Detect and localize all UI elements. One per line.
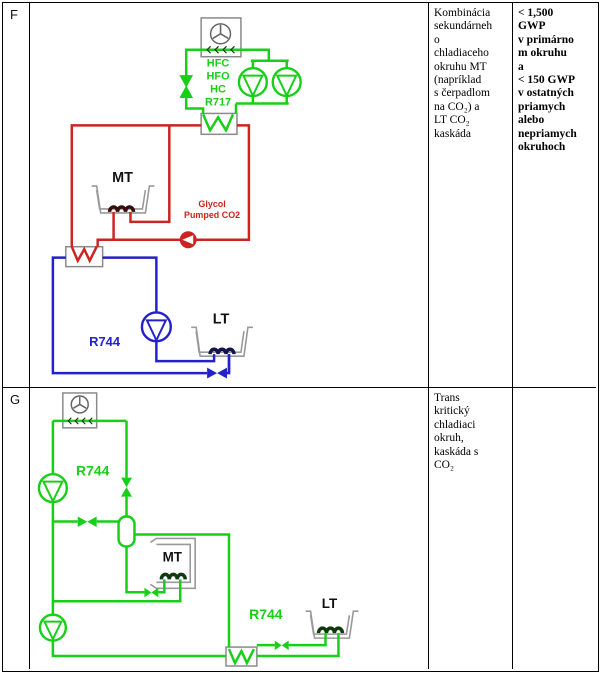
lt-expansion-valve bbox=[275, 641, 289, 650]
r744-upper-label: R744 bbox=[76, 463, 110, 479]
description-f: Kombinácia sekundárneh o chladiaceho okr… bbox=[429, 3, 513, 388]
expansion-valve-primary bbox=[180, 76, 192, 98]
mt-coil bbox=[161, 574, 185, 579]
diagram-g-transcritical-system: R744 R744 MT LT bbox=[30, 388, 428, 669]
row-label-g: G bbox=[3, 388, 30, 669]
gwp-requirement-g bbox=[513, 388, 596, 669]
lt-expansion-valve bbox=[207, 368, 227, 379]
compressor-lower bbox=[40, 615, 66, 641]
mt-label: MT bbox=[163, 549, 183, 564]
flash-gas-valve bbox=[78, 517, 97, 527]
r744-label: R744 bbox=[89, 334, 121, 349]
r744-lower-label: R744 bbox=[249, 606, 283, 622]
mt-label: MT bbox=[112, 170, 133, 186]
diagram-f-cascade-system: HFC HFO HC R717 MT LT Glycol Pumped CO2 … bbox=[30, 3, 428, 387]
glycol-pump bbox=[180, 232, 196, 248]
page: F bbox=[0, 0, 600, 673]
lt-display-case bbox=[191, 327, 253, 356]
lt-label: LT bbox=[322, 596, 338, 611]
refrigerant-label-r717: R717 bbox=[205, 96, 231, 108]
glycol-label-line2: Pumped CO2 bbox=[184, 210, 240, 220]
r744-compressor bbox=[142, 312, 171, 341]
refrigerant-label-hc: HC bbox=[210, 84, 226, 96]
refrigerant-label-hfc: HFC bbox=[207, 58, 230, 70]
glycol-label-line1: Glycol bbox=[198, 199, 225, 209]
lt-display-case bbox=[306, 611, 359, 638]
liquid-receiver bbox=[119, 517, 135, 547]
diagram-cell-g: R744 R744 MT LT bbox=[30, 388, 429, 669]
lt-coil bbox=[319, 628, 343, 633]
gas-cooler-unit bbox=[63, 393, 97, 428]
bypass-valve-vertical bbox=[121, 478, 132, 497]
compressor-2 bbox=[273, 68, 301, 96]
refrigerant-options-table: F bbox=[2, 2, 599, 672]
refrigerant-label-hfo: HFO bbox=[207, 71, 231, 83]
lt-label: LT bbox=[213, 311, 230, 327]
compressor-upper bbox=[39, 474, 67, 502]
compressor-1 bbox=[239, 68, 267, 96]
mt-expansion-valve bbox=[144, 588, 158, 597]
diagram-cell-f: HFC HFO HC R717 MT LT Glycol Pumped CO2 … bbox=[30, 3, 429, 388]
gwp-requirement-f: < 1,500 GWP v primárno m okruhu a < 150 … bbox=[513, 3, 596, 388]
row-label-f: F bbox=[3, 3, 30, 388]
description-g: Trans kritický chladiaci okruh, kaskáda … bbox=[429, 388, 513, 669]
